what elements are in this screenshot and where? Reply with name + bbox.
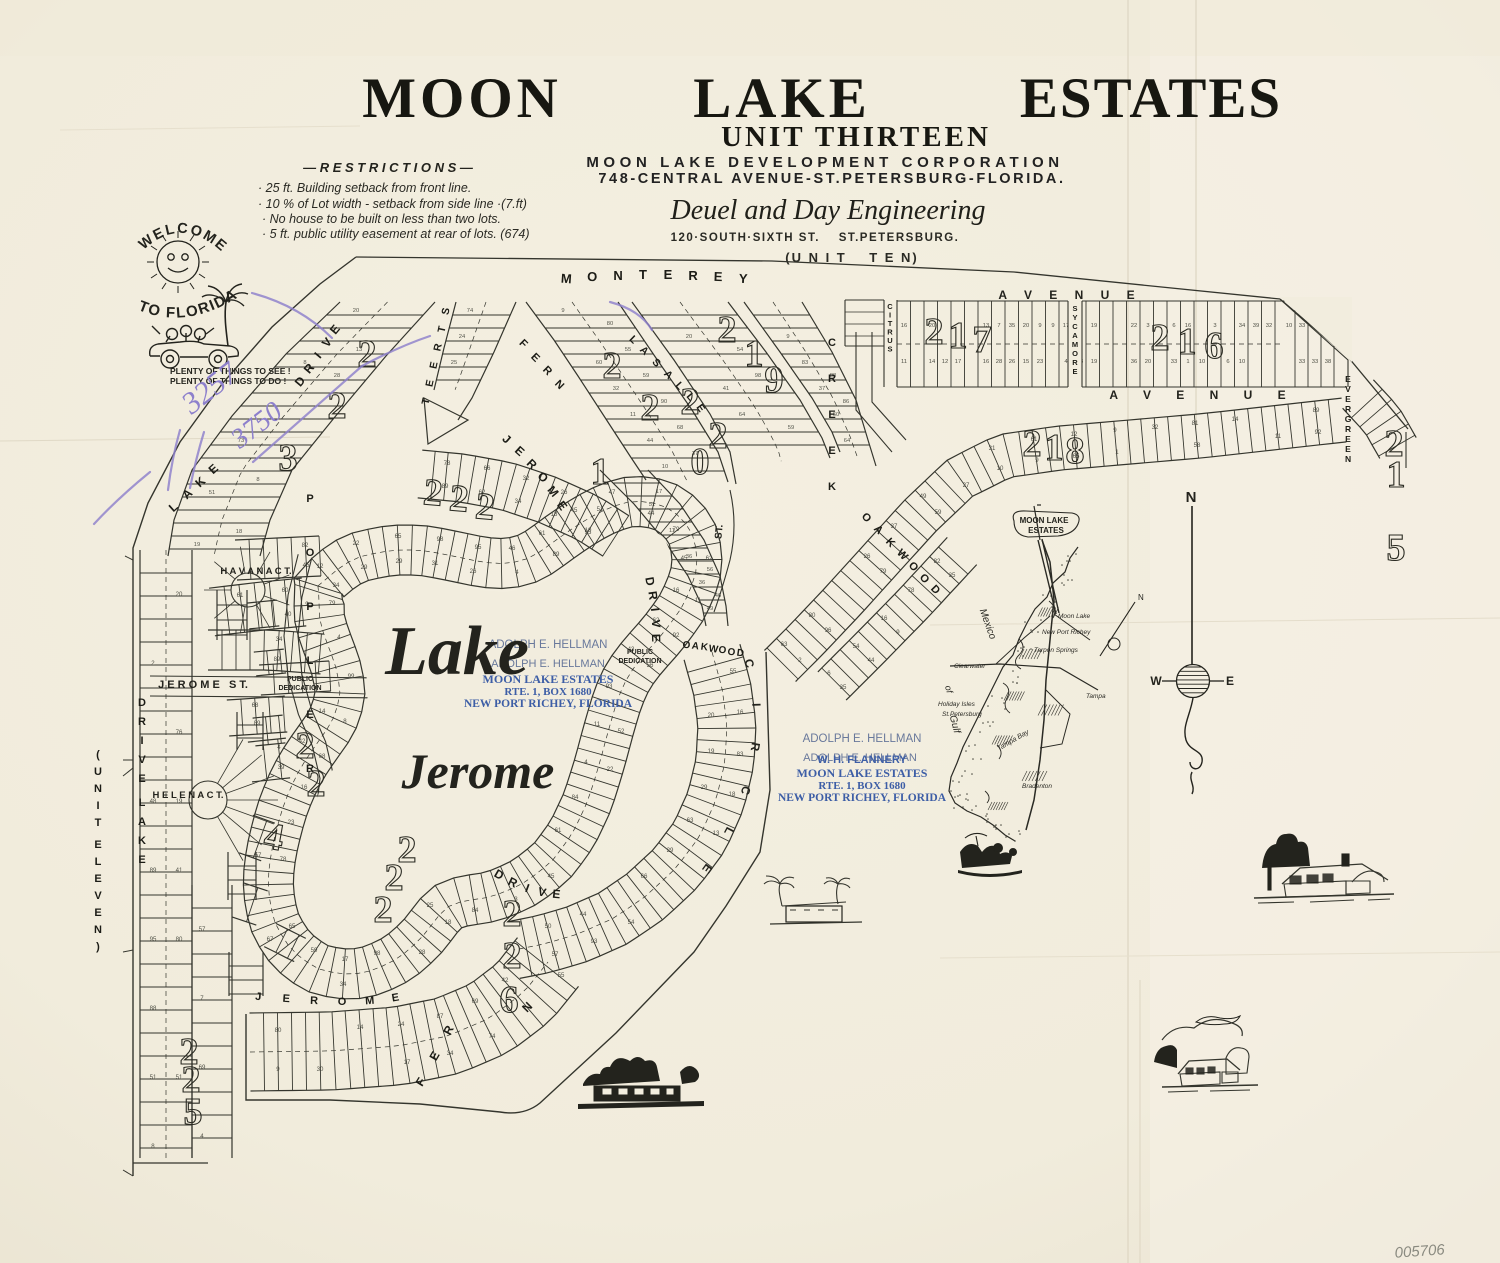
svg-text:PUBLIC: PUBLIC <box>287 676 313 683</box>
svg-text:11: 11 <box>901 359 907 365</box>
svg-text:51: 51 <box>150 1074 157 1081</box>
svg-text:ADOLPH E. HELLMAN: ADOLPH E. HELLMAN <box>803 733 922 745</box>
svg-text:2: 2 <box>503 893 522 935</box>
svg-text:NEW PORT RICHEY, FLORIDA: NEW PORT RICHEY, FLORIDA <box>464 698 633 710</box>
svg-text:10: 10 <box>1286 323 1292 329</box>
svg-text:R: R <box>138 716 146 728</box>
svg-text:Y: Y <box>739 271 749 286</box>
svg-text:M: M <box>560 271 572 287</box>
svg-text:E: E <box>94 839 101 851</box>
svg-text:E: E <box>94 873 101 885</box>
svg-text:58: 58 <box>1194 442 1201 449</box>
svg-text:44: 44 <box>580 911 587 918</box>
svg-text:59: 59 <box>788 425 794 431</box>
svg-text:80: 80 <box>607 321 613 327</box>
svg-text:38: 38 <box>1325 359 1331 365</box>
svg-text:15: 15 <box>1023 359 1029 365</box>
svg-text:· 5 ft. public utility easemen: · 5 ft. public utility easement at rear … <box>262 227 529 241</box>
svg-text:59: 59 <box>643 373 649 379</box>
svg-text:1: 1 <box>1387 454 1406 496</box>
svg-text:2: 2 <box>296 725 315 767</box>
svg-text:6: 6 <box>500 979 519 1021</box>
svg-text:22: 22 <box>353 540 360 547</box>
svg-text:R: R <box>1345 424 1351 434</box>
svg-text:Tarpon Springs: Tarpon Springs <box>1034 647 1079 654</box>
svg-text:M: M <box>1072 340 1078 349</box>
svg-text:E: E <box>552 887 561 902</box>
svg-text:59: 59 <box>311 947 318 954</box>
svg-text:37: 37 <box>891 523 898 530</box>
svg-text:A V E N U E: A V E N U E <box>1109 388 1296 402</box>
svg-text:· 10 % of Lot width - setback: · 10 % of Lot width - setback from side … <box>258 197 527 211</box>
svg-text:DEDICATION: DEDICATION <box>618 658 661 665</box>
svg-text:7: 7 <box>997 323 1000 329</box>
svg-text:E: E <box>1345 444 1351 454</box>
svg-text:32: 32 <box>1152 424 1159 431</box>
svg-text:18: 18 <box>729 791 736 798</box>
svg-text:29: 29 <box>701 784 708 791</box>
svg-text:98: 98 <box>374 950 381 957</box>
svg-text:54: 54 <box>628 919 635 926</box>
svg-text:H E L E N A C T.: H E L E N A C T. <box>153 790 224 801</box>
svg-text:22: 22 <box>1131 323 1137 329</box>
svg-text:16: 16 <box>881 615 888 622</box>
svg-text:44: 44 <box>647 438 654 444</box>
svg-text:36: 36 <box>699 580 705 586</box>
svg-text:Deuel and Day Engineering: Deuel and Day Engineering <box>670 195 986 226</box>
svg-text:RTE. 1, BOX 1680: RTE. 1, BOX 1680 <box>818 780 906 792</box>
svg-text:A: A <box>138 816 146 828</box>
svg-text:67: 67 <box>267 936 274 943</box>
svg-text:60: 60 <box>596 360 602 366</box>
svg-text:14: 14 <box>929 359 936 365</box>
svg-text:14: 14 <box>1232 416 1239 423</box>
svg-text:2: 2 <box>925 311 944 353</box>
svg-text:MOON: MOON <box>362 67 562 130</box>
svg-text:28: 28 <box>334 373 340 379</box>
svg-text:33: 33 <box>1312 359 1318 365</box>
svg-text:19: 19 <box>1091 323 1097 329</box>
svg-text:24: 24 <box>459 334 466 340</box>
svg-text:29: 29 <box>396 558 403 565</box>
svg-text:Bradenton: Bradenton <box>1022 783 1052 790</box>
svg-text:E: E <box>1345 374 1351 384</box>
svg-text:O: O <box>306 547 315 559</box>
svg-text:57: 57 <box>199 926 206 933</box>
svg-text:18: 18 <box>445 919 452 926</box>
svg-text:748-CENTRAL AVENUE-ST.PETERSBU: 748-CENTRAL AVENUE-ST.PETERSBURG-FLORIDA… <box>598 171 1065 187</box>
svg-text:A: A <box>1072 331 1078 340</box>
svg-text:H A V A N A C T.: H A V A N A C T. <box>220 566 291 577</box>
svg-text:NEW PORT RICHEY, FLORIDA: NEW PORT RICHEY, FLORIDA <box>778 792 947 804</box>
svg-text:83: 83 <box>737 751 744 758</box>
svg-text:1: 1 <box>745 333 764 375</box>
svg-text:DEDICATION: DEDICATION <box>278 685 321 692</box>
svg-text:V: V <box>138 754 146 766</box>
svg-text:79: 79 <box>329 600 336 607</box>
svg-text:28: 28 <box>419 949 426 956</box>
svg-text:89: 89 <box>150 867 157 874</box>
svg-text:MOON LAKE: MOON LAKE <box>1020 516 1070 525</box>
svg-text:10: 10 <box>997 465 1004 472</box>
svg-text:E: E <box>282 993 290 1005</box>
svg-text:64: 64 <box>739 412 746 418</box>
svg-text:S: S <box>1072 304 1077 313</box>
svg-text:61: 61 <box>237 592 244 599</box>
svg-text:D: D <box>138 697 146 709</box>
svg-text:2: 2 <box>503 935 522 977</box>
svg-text:1: 1 <box>1178 321 1197 363</box>
svg-text:64: 64 <box>844 438 851 444</box>
svg-text:31: 31 <box>432 560 439 567</box>
svg-text:19: 19 <box>194 542 200 548</box>
svg-text:10: 10 <box>662 464 668 470</box>
svg-text:2: 2 <box>1023 423 1042 465</box>
svg-text:Lake: Lake <box>384 613 529 690</box>
svg-text:68: 68 <box>319 753 326 760</box>
svg-text:18: 18 <box>236 529 242 535</box>
svg-text:68: 68 <box>677 425 683 431</box>
svg-text:54: 54 <box>853 643 860 650</box>
svg-text:84: 84 <box>472 907 479 914</box>
svg-text:76: 76 <box>176 729 183 736</box>
svg-text:89: 89 <box>274 656 281 663</box>
svg-text:50: 50 <box>545 923 552 930</box>
svg-text:E: E <box>138 773 145 785</box>
svg-text:A V E N U E: A V E N U E <box>998 288 1141 302</box>
svg-text:78: 78 <box>280 856 287 863</box>
svg-text:96: 96 <box>825 627 832 634</box>
svg-text:I: I <box>96 800 99 812</box>
svg-text:78: 78 <box>444 460 451 467</box>
svg-text:· 25 ft. Building setback from: · 25 ft. Building setback from front lin… <box>258 181 471 195</box>
svg-text:(: ( <box>96 749 100 761</box>
svg-text:L: L <box>139 797 146 809</box>
svg-text:2: 2 <box>448 477 471 520</box>
svg-text:R: R <box>310 995 318 1007</box>
svg-text:2: 2 <box>1151 317 1170 359</box>
svg-text:9: 9 <box>786 334 789 340</box>
svg-text:26: 26 <box>470 568 477 575</box>
svg-text:88: 88 <box>150 1005 157 1012</box>
svg-text:Jerome: Jerome <box>401 743 555 799</box>
svg-text:31: 31 <box>989 445 996 452</box>
svg-text:2: 2 <box>603 345 622 387</box>
svg-text:1: 1 <box>1045 427 1064 469</box>
svg-text:10: 10 <box>585 527 592 534</box>
svg-text:20: 20 <box>686 334 692 340</box>
svg-text:90: 90 <box>661 399 667 405</box>
svg-text:ESTATES: ESTATES <box>1028 526 1064 535</box>
svg-text:44: 44 <box>648 510 655 517</box>
svg-text:2: 2 <box>374 889 393 931</box>
svg-text:32: 32 <box>523 475 530 482</box>
svg-text:10: 10 <box>1239 359 1245 365</box>
svg-text:41: 41 <box>176 867 183 874</box>
svg-text:34: 34 <box>333 582 340 589</box>
svg-text:34: 34 <box>340 981 347 988</box>
svg-text:2: 2 <box>474 485 497 528</box>
svg-text:7: 7 <box>973 319 992 361</box>
svg-text:74: 74 <box>489 1033 496 1040</box>
svg-text:51: 51 <box>597 506 604 513</box>
svg-text:— R E S T R I C T I O N S —: — R E S T R I C T I O N S — <box>302 160 474 175</box>
svg-text:2: 2 <box>307 763 326 805</box>
svg-text:A: A <box>691 641 700 653</box>
svg-text:14: 14 <box>319 708 326 715</box>
svg-text:9: 9 <box>765 359 784 401</box>
svg-text:68: 68 <box>252 702 259 709</box>
svg-text:Holiday Isles: Holiday Isles <box>938 701 976 708</box>
svg-text:61: 61 <box>555 827 562 834</box>
svg-text:S: S <box>887 345 892 354</box>
svg-text:57: 57 <box>552 951 559 958</box>
svg-text:80: 80 <box>275 1027 282 1034</box>
svg-text:79: 79 <box>880 568 887 575</box>
svg-text:E: E <box>714 269 724 284</box>
svg-text:O: O <box>587 269 598 284</box>
svg-text:25: 25 <box>427 902 434 909</box>
svg-text:16: 16 <box>737 709 744 716</box>
svg-text:E: E <box>1226 674 1234 688</box>
svg-text:80: 80 <box>809 612 816 619</box>
svg-text:0: 0 <box>691 441 710 483</box>
svg-text:2: 2 <box>709 415 728 457</box>
svg-text:T: T <box>95 817 102 829</box>
svg-text:R: R <box>688 268 698 283</box>
svg-text:34: 34 <box>1239 323 1246 329</box>
svg-text:37: 37 <box>819 386 825 392</box>
svg-text:29: 29 <box>361 564 368 571</box>
svg-text:86: 86 <box>843 399 849 405</box>
svg-text:65: 65 <box>289 923 296 930</box>
svg-text:61: 61 <box>539 530 546 537</box>
svg-text:8: 8 <box>1066 430 1085 472</box>
svg-text:11: 11 <box>1275 433 1282 440</box>
svg-text:29: 29 <box>667 847 674 854</box>
svg-text:93: 93 <box>591 938 598 945</box>
svg-text:66: 66 <box>641 873 648 880</box>
svg-text:62: 62 <box>706 555 713 562</box>
svg-text:24: 24 <box>398 1021 405 1028</box>
svg-text:V: V <box>649 619 664 628</box>
svg-text:5: 5 <box>184 1091 203 1133</box>
svg-text:I: I <box>140 735 143 747</box>
svg-text:G: G <box>1345 414 1352 424</box>
svg-text:9: 9 <box>1051 323 1054 329</box>
svg-text:39: 39 <box>1253 323 1259 329</box>
svg-text:18: 18 <box>551 511 558 518</box>
svg-text:95: 95 <box>475 544 482 551</box>
svg-text:D: D <box>736 648 745 660</box>
svg-text:89: 89 <box>254 720 261 727</box>
svg-text:J E R O M E S T.: J E R O M E S T. <box>158 679 248 691</box>
svg-text:11: 11 <box>630 412 636 418</box>
svg-text:99: 99 <box>348 673 355 680</box>
svg-text:35: 35 <box>840 684 847 691</box>
svg-text:O: O <box>1072 349 1078 358</box>
svg-text:N: N <box>94 783 102 795</box>
svg-text:92: 92 <box>673 632 680 639</box>
svg-text:ST.: ST. <box>713 524 725 540</box>
svg-text:92: 92 <box>1315 429 1322 436</box>
svg-text:O: O <box>338 996 347 1008</box>
svg-text:44: 44 <box>868 657 875 664</box>
svg-text:V: V <box>94 890 102 902</box>
svg-text:6: 6 <box>1172 323 1175 329</box>
svg-text:Y: Y <box>1072 313 1077 322</box>
svg-text:80: 80 <box>176 936 183 943</box>
svg-text:52: 52 <box>618 728 625 735</box>
svg-text:28: 28 <box>996 359 1002 365</box>
svg-text:41: 41 <box>723 386 729 392</box>
svg-text:17: 17 <box>404 1059 411 1066</box>
svg-text:27: 27 <box>963 482 970 489</box>
svg-text:35: 35 <box>1009 323 1015 329</box>
svg-text:20: 20 <box>176 591 183 598</box>
svg-text:MOON LAKE ESTATES: MOON LAKE ESTATES <box>797 766 928 780</box>
svg-text:89: 89 <box>553 551 560 558</box>
svg-text:PUBLIC: PUBLIC <box>627 649 653 656</box>
svg-text:L: L <box>307 655 314 667</box>
svg-text:N: N <box>1186 489 1197 506</box>
svg-text:59: 59 <box>935 509 942 516</box>
svg-text:St.Petersburg: St.Petersburg <box>942 711 982 718</box>
svg-text:20: 20 <box>1145 359 1151 365</box>
svg-text:Tampa: Tampa <box>1086 693 1106 700</box>
svg-text:89: 89 <box>1313 407 1320 414</box>
svg-text:34: 34 <box>515 498 522 505</box>
svg-text:19: 19 <box>1091 359 1097 365</box>
svg-text:R: R <box>828 373 836 385</box>
svg-text:E: E <box>138 854 145 866</box>
svg-text:Moon Lake: Moon Lake <box>1058 613 1091 620</box>
svg-text:C: C <box>828 337 836 349</box>
svg-text:25: 25 <box>451 360 457 366</box>
svg-text:26: 26 <box>1009 359 1015 365</box>
svg-text:2: 2 <box>718 309 737 351</box>
svg-text:78: 78 <box>908 587 915 594</box>
svg-text:82: 82 <box>934 558 941 565</box>
svg-text:65: 65 <box>395 533 402 540</box>
svg-text:W: W <box>1150 674 1162 688</box>
svg-text:Clearwater: Clearwater <box>954 663 986 670</box>
svg-text:120·SOUTH·SIXTH ST. ST.PETE: 120·SOUTH·SIXTH ST. ST.PETERSBURG. <box>671 232 960 244</box>
svg-text:33: 33 <box>1299 323 1305 329</box>
svg-text:6: 6 <box>1205 325 1224 367</box>
svg-text:9: 9 <box>1038 323 1041 329</box>
svg-text:33: 33 <box>1299 359 1305 365</box>
svg-text:E: E <box>828 409 835 421</box>
svg-text:L: L <box>95 856 102 868</box>
svg-text:32: 32 <box>1266 323 1272 329</box>
svg-text:R: R <box>1345 404 1351 414</box>
svg-text:M: M <box>365 995 375 1008</box>
svg-text:83: 83 <box>802 360 808 366</box>
svg-text:3: 3 <box>279 437 298 479</box>
svg-text:55: 55 <box>730 668 737 675</box>
svg-text:E: E <box>1345 434 1351 444</box>
svg-text:20: 20 <box>353 308 359 314</box>
svg-text:P: P <box>306 601 313 613</box>
svg-text:E: E <box>94 907 101 919</box>
svg-text:35: 35 <box>949 572 956 579</box>
svg-text:1: 1 <box>949 315 968 357</box>
svg-text:36: 36 <box>1131 359 1137 365</box>
svg-text:11: 11 <box>695 597 702 604</box>
svg-text:2: 2 <box>328 385 347 427</box>
svg-text:51: 51 <box>209 490 215 496</box>
svg-text:E: E <box>1345 394 1351 404</box>
svg-text:6: 6 <box>1226 359 1229 365</box>
svg-text:47: 47 <box>609 489 616 496</box>
svg-text:22: 22 <box>607 766 614 773</box>
svg-text:46: 46 <box>509 545 516 552</box>
svg-text:63: 63 <box>687 817 694 824</box>
svg-text:· No house to be built on less: · No house to be built on less than two … <box>262 212 501 226</box>
svg-text:14: 14 <box>357 1024 364 1031</box>
svg-text:N: N <box>94 924 102 936</box>
svg-text:): ) <box>96 941 100 953</box>
svg-text:69: 69 <box>472 998 479 1005</box>
svg-text:9: 9 <box>561 308 564 314</box>
svg-text:E: E <box>828 445 835 457</box>
svg-text:54: 54 <box>737 347 744 353</box>
svg-text:34: 34 <box>276 636 283 643</box>
svg-text:20: 20 <box>1023 323 1029 329</box>
svg-text:17: 17 <box>955 359 961 365</box>
svg-text:E: E <box>664 267 673 282</box>
svg-text:98: 98 <box>437 536 444 543</box>
svg-text:12: 12 <box>317 563 324 570</box>
svg-text:T: T <box>639 267 647 282</box>
svg-text:K: K <box>828 481 836 493</box>
svg-text:33: 33 <box>1171 359 1177 365</box>
svg-text:E: E <box>1072 367 1077 376</box>
svg-text:23: 23 <box>288 819 295 826</box>
svg-text:2: 2 <box>641 387 660 429</box>
svg-text:J: J <box>255 991 262 1003</box>
svg-text:N: N <box>613 268 622 283</box>
svg-text:20: 20 <box>708 712 715 719</box>
svg-text:23: 23 <box>1037 359 1043 365</box>
svg-text:17: 17 <box>342 956 349 963</box>
svg-text:R: R <box>1072 358 1078 367</box>
svg-text:3: 3 <box>1146 323 1149 329</box>
svg-text:56: 56 <box>707 567 713 573</box>
svg-text:30: 30 <box>317 1066 324 1073</box>
svg-text:16: 16 <box>673 587 680 594</box>
svg-text:K: K <box>138 835 146 847</box>
svg-text:V: V <box>1345 384 1351 394</box>
svg-text:New Port Richey: New Port Richey <box>1042 629 1091 636</box>
svg-text:N: N <box>1138 593 1144 602</box>
svg-text:49: 49 <box>920 493 927 500</box>
svg-text:005706: 005706 <box>1394 1241 1446 1261</box>
svg-text:C: C <box>1072 322 1078 331</box>
svg-text:W. H. FLANNERY: W. H. FLANNERY <box>817 754 907 766</box>
svg-text:55: 55 <box>625 347 631 353</box>
svg-text:34: 34 <box>447 1050 454 1057</box>
svg-text:1: 1 <box>591 451 610 493</box>
svg-text:60: 60 <box>282 587 289 594</box>
svg-text:66: 66 <box>484 465 491 472</box>
svg-text:26: 26 <box>864 553 871 560</box>
svg-text:45: 45 <box>681 555 688 562</box>
svg-text:87: 87 <box>437 1013 444 1020</box>
svg-text:74: 74 <box>467 308 474 314</box>
svg-text:12: 12 <box>942 359 948 365</box>
